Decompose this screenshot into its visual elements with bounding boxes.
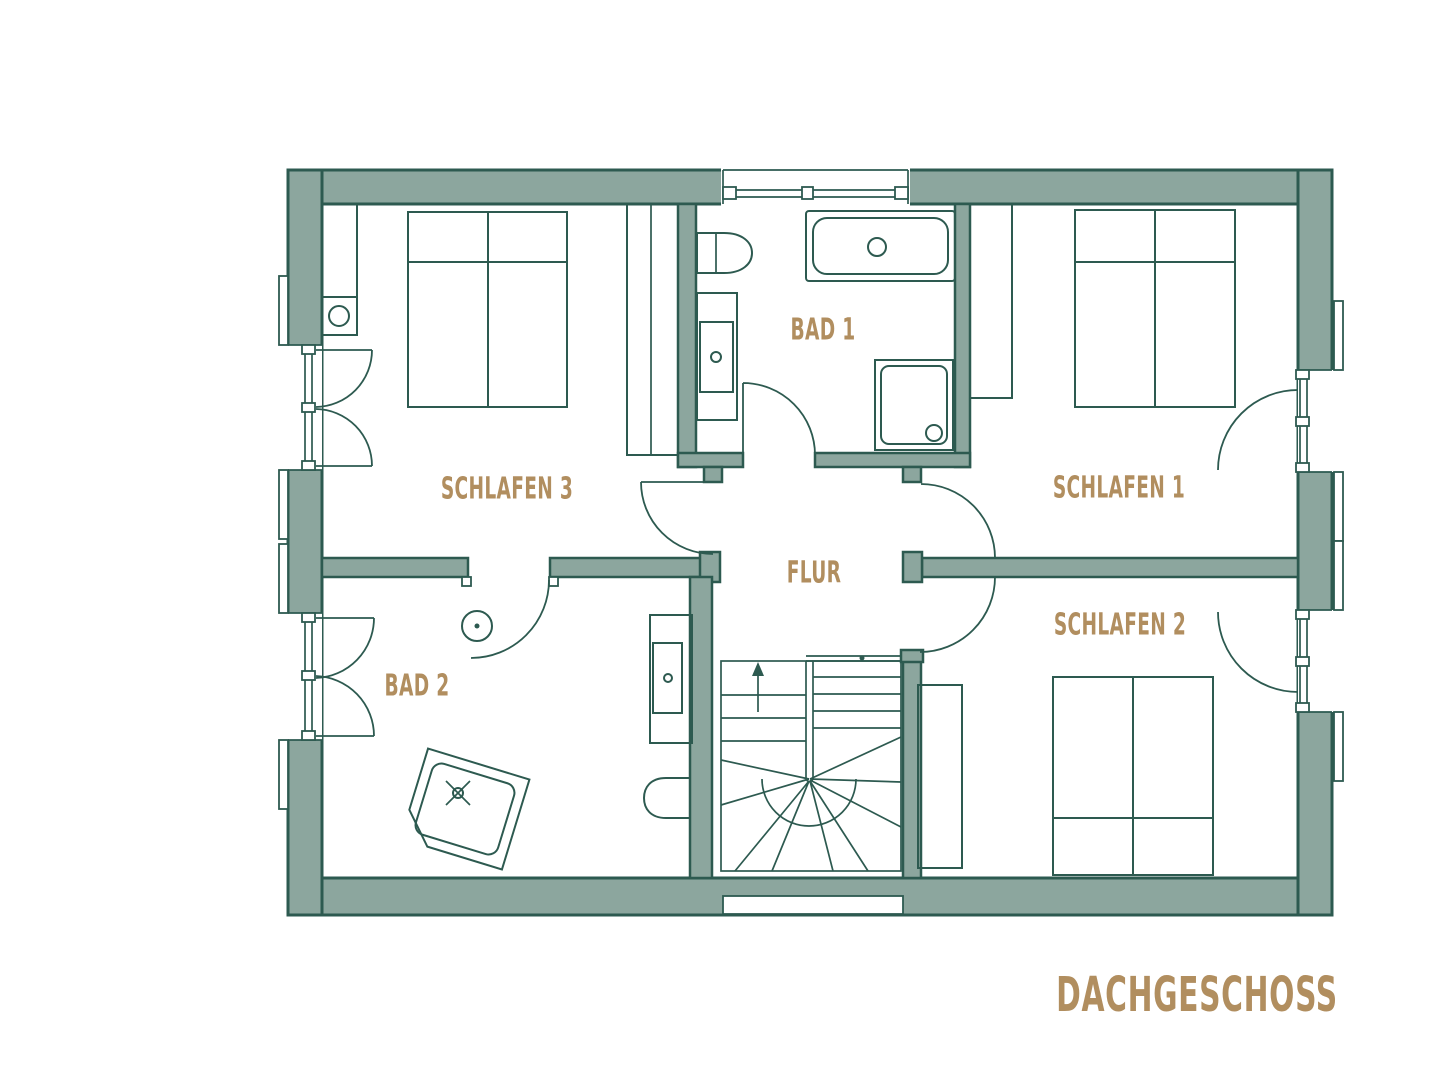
bathtub-icon xyxy=(806,211,955,281)
interior-walls xyxy=(322,204,1298,878)
window-top-icon xyxy=(721,166,910,206)
door-bad2-icon xyxy=(471,580,549,658)
door-swings xyxy=(471,383,995,658)
door-bad1-icon xyxy=(743,383,815,455)
toilet-icon xyxy=(697,233,752,273)
floor-plan-canvas: SCHLAFEN 3 BAD 1 SCHLAFEN 1 FLUR SCHLAFE… xyxy=(0,0,1440,1080)
washbasin-icon xyxy=(650,615,692,743)
double-bed-icon xyxy=(1053,677,1213,875)
round-basin-icon xyxy=(462,611,492,641)
double-bed-icon xyxy=(408,212,567,407)
chimney-washstand-icon xyxy=(322,204,357,335)
corner-bathtub-icon xyxy=(401,749,530,870)
staircase-icon xyxy=(721,656,901,872)
room-schlafen-1 xyxy=(970,204,1235,407)
room-label-flur: FLUR xyxy=(787,556,842,591)
floor-title: DACHGESCHOSS xyxy=(1056,967,1338,1023)
door-schlafen3-icon xyxy=(641,482,713,554)
room-schlafen-3 xyxy=(322,204,678,455)
toilet-icon xyxy=(644,778,690,818)
room-label-schlafen2: SCHLAFEN 2 xyxy=(1054,608,1186,643)
room-label-bad2: BAD 2 xyxy=(385,669,450,704)
wardrobe-icon xyxy=(627,204,678,455)
floor-plan-drawing xyxy=(0,0,1440,1080)
room-bad-2 xyxy=(401,611,692,869)
door-schlafen2-icon xyxy=(920,577,995,652)
window-bottom-icon xyxy=(723,896,903,914)
room-label-schlafen1: SCHLAFEN 1 xyxy=(1053,471,1185,506)
wardrobe-icon xyxy=(970,204,1012,398)
door-schlafen1-icon xyxy=(921,484,995,558)
washbasin-icon xyxy=(697,293,737,420)
room-schlafen-2 xyxy=(918,677,1213,875)
double-bed-icon xyxy=(1075,210,1235,407)
room-label-schlafen3: SCHLAFEN 3 xyxy=(441,472,573,507)
room-label-bad1: BAD 1 xyxy=(791,313,856,348)
shower-icon xyxy=(875,360,953,450)
wardrobe-icon xyxy=(918,685,962,868)
